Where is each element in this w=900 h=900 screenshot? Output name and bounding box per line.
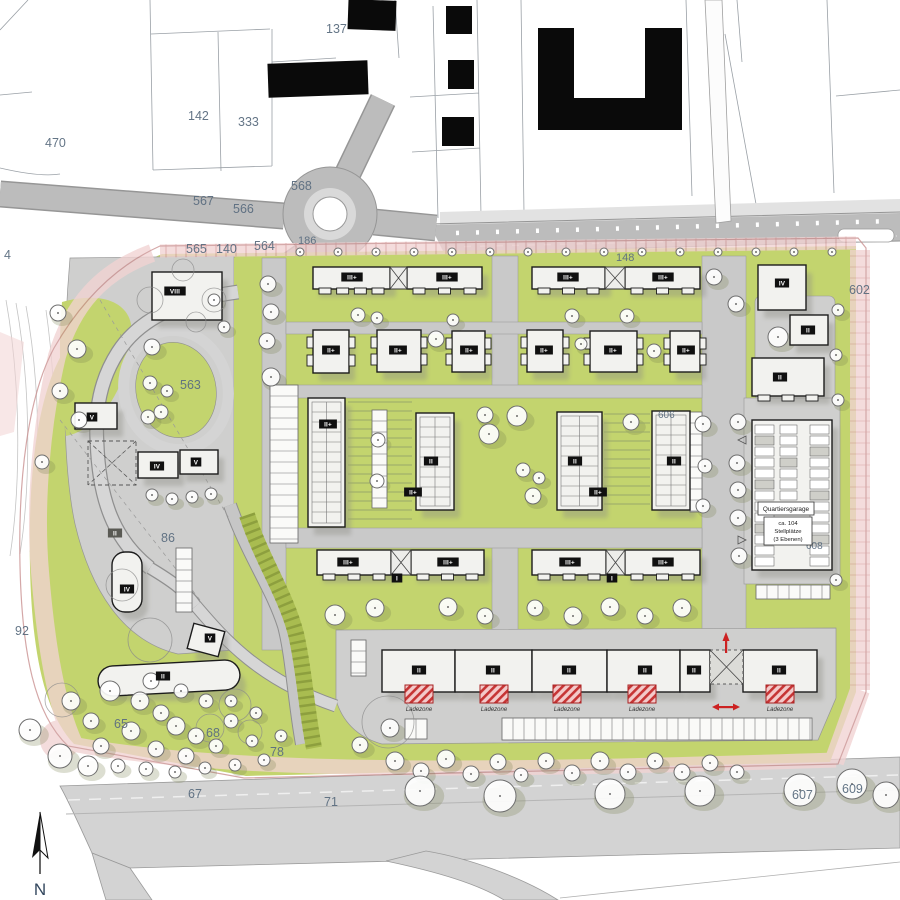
tree [93, 738, 109, 754]
svg-text:II: II [692, 667, 696, 674]
tree [591, 752, 609, 770]
parcel-number: 186 [298, 235, 316, 247]
parcel-number: 602 [849, 283, 870, 297]
story-badge: II+ [589, 488, 607, 497]
story-badge: II [424, 457, 438, 466]
tree [410, 248, 418, 256]
story-badge: II [667, 457, 681, 466]
tree [405, 776, 435, 806]
tree [52, 383, 68, 399]
tree [258, 754, 270, 766]
tree [698, 459, 712, 473]
parcel-number: 142 [188, 109, 209, 123]
tree [371, 312, 383, 324]
svg-text:II: II [491, 667, 495, 674]
tree [205, 488, 217, 500]
tree [366, 599, 384, 617]
tree [199, 694, 213, 708]
svg-text:V: V [194, 459, 199, 466]
ladezone-label: Ladezone [629, 707, 656, 713]
svg-text:II: II [643, 667, 647, 674]
parcel-number: 566 [233, 202, 254, 216]
parcel-number: 606 [658, 410, 675, 421]
ladezone-label: Ladezone [406, 707, 433, 713]
parking-stall-row [176, 548, 192, 612]
tree [428, 331, 444, 347]
parcel-number: 68 [206, 726, 220, 740]
tree [111, 759, 125, 773]
tree [832, 394, 844, 406]
story-badge: II [486, 666, 500, 675]
tree [477, 608, 493, 624]
parcel-number: 4 [4, 248, 11, 262]
svg-text:II+: II+ [327, 347, 335, 354]
story-badge: IV [775, 279, 789, 288]
tree [477, 407, 493, 423]
ladezone-label: Ladezone [481, 707, 508, 713]
ladezone: Ladezone [480, 685, 508, 713]
svg-text:II+: II+ [465, 347, 473, 354]
tree [479, 424, 499, 444]
story-badge: II [773, 373, 787, 382]
tree [828, 248, 836, 256]
story-badge: II [108, 529, 122, 538]
tree [146, 489, 158, 501]
story-badge: II+ [535, 346, 553, 355]
story-badge: II [772, 666, 786, 675]
tree [246, 735, 258, 747]
ladezone-label: Ladezone [554, 707, 581, 713]
tree [186, 491, 198, 503]
parking-stall-row [502, 718, 812, 740]
story-badge: II [568, 457, 582, 466]
parcel-number: 607 [792, 788, 813, 802]
parcel-number: 65 [114, 717, 128, 731]
tree [167, 717, 185, 735]
tree [263, 304, 279, 320]
tree [296, 248, 304, 256]
parcel-number: 71 [324, 795, 338, 809]
parcel-number: 333 [238, 115, 259, 129]
tree [600, 248, 608, 256]
tree [71, 412, 87, 428]
story-badge: I [607, 574, 618, 583]
parcel-number: 137 [326, 22, 347, 36]
svg-text:II+: II+ [682, 347, 690, 354]
building [308, 398, 345, 527]
parcel-number: 92 [15, 624, 29, 638]
garage-note: Quartiersgarage ca. 104 Stellplätze (3 E… [758, 502, 814, 545]
parcel-number: 470 [45, 136, 66, 150]
svg-text:II: II [806, 327, 810, 334]
tree [161, 385, 173, 397]
story-badge: III+ [652, 558, 673, 567]
parcel-number: 78 [270, 745, 284, 759]
tree [325, 605, 345, 625]
tree [706, 269, 722, 285]
svg-text:IV: IV [154, 463, 161, 470]
svg-text:III+: III+ [565, 559, 575, 566]
tree [674, 764, 690, 780]
tree [381, 719, 399, 737]
svg-text:III+: III+ [658, 559, 668, 566]
svg-text:II+: II+ [324, 421, 332, 428]
parcel-number: 568 [291, 179, 312, 193]
tree [62, 692, 80, 710]
tree [448, 248, 456, 256]
svg-text:II: II [161, 673, 165, 680]
tree [768, 327, 788, 347]
story-badge: II [687, 666, 701, 675]
story-badge: III+ [652, 273, 673, 282]
svg-text:III+: III+ [343, 559, 353, 566]
parking-stall-row [270, 385, 298, 543]
tree [275, 730, 287, 742]
story-badge: II [801, 326, 815, 335]
tree [575, 338, 587, 350]
parcel-number: 140 [216, 242, 237, 256]
tree [199, 762, 211, 774]
tree [370, 474, 384, 488]
story-badge: IV [120, 585, 134, 594]
tree [447, 314, 459, 326]
svg-text:II: II [777, 667, 781, 674]
story-badge: IV [150, 462, 164, 471]
ladezone: Ladezone [628, 685, 656, 713]
building [391, 550, 411, 575]
tree [538, 753, 554, 769]
svg-text:II: II [573, 458, 577, 465]
tree [178, 748, 194, 764]
tree [35, 455, 49, 469]
tree [564, 765, 580, 781]
svg-text:I: I [396, 575, 398, 582]
story-badge: II+ [604, 346, 622, 355]
tree [484, 780, 516, 812]
story-badge: III+ [341, 273, 362, 282]
story-badge: V [205, 634, 216, 643]
story-badge: III+ [437, 558, 458, 567]
tree [695, 416, 711, 432]
tree [208, 294, 220, 306]
story-badge: III+ [559, 558, 580, 567]
parcel-number: 567 [193, 194, 214, 208]
tree [830, 574, 842, 586]
tree [259, 333, 275, 349]
tree [490, 754, 506, 770]
tree [437, 750, 455, 768]
tree [154, 405, 168, 419]
tree [139, 762, 153, 776]
tree [386, 752, 404, 770]
tree [143, 376, 157, 390]
svg-text:III+: III+ [443, 559, 453, 566]
tree [623, 414, 639, 430]
tree [141, 410, 155, 424]
svg-text:V: V [90, 414, 95, 421]
tree [702, 755, 718, 771]
north-label: N [34, 880, 46, 899]
tree [601, 598, 619, 616]
svg-text:II: II [567, 667, 571, 674]
tree [174, 684, 188, 698]
svg-text:II+: II+ [394, 347, 402, 354]
tree [224, 714, 238, 728]
tree [439, 598, 457, 616]
svg-text:III+: III+ [442, 274, 452, 281]
tree [524, 248, 532, 256]
svg-text:VIII: VIII [170, 288, 180, 295]
tree [564, 607, 582, 625]
tree [676, 248, 684, 256]
story-badge: V [87, 413, 98, 422]
parcel-number: 565 [186, 242, 207, 256]
story-badge: II [638, 666, 652, 675]
tree [730, 482, 746, 498]
svg-text:IV: IV [124, 586, 131, 593]
tree [730, 510, 746, 526]
tree [685, 776, 715, 806]
tree [527, 600, 543, 616]
story-badge: V [191, 458, 202, 467]
ladezone: Ladezone [766, 685, 794, 713]
tree [131, 692, 149, 710]
story-badge: II+ [319, 420, 337, 429]
tree [525, 488, 541, 504]
tree [68, 340, 86, 358]
tree [673, 599, 691, 617]
garage-unit: Stellplätze [774, 529, 802, 535]
svg-text:II: II [429, 458, 433, 465]
parcel-number: 609 [842, 782, 863, 796]
tree [148, 741, 164, 757]
tree [371, 433, 385, 447]
tree [830, 349, 842, 361]
tree [48, 744, 72, 768]
parking-stall-row [756, 585, 830, 599]
svg-text:II: II [778, 374, 782, 381]
svg-text:V: V [208, 635, 213, 642]
building [605, 267, 625, 289]
garage-capacity: ca. 104 [778, 521, 798, 527]
tree [166, 493, 178, 505]
svg-text:II+: II+ [409, 489, 417, 496]
tree [463, 766, 479, 782]
tree [620, 309, 634, 323]
tree [728, 296, 744, 312]
tree [790, 248, 798, 256]
tree [832, 304, 844, 316]
svg-text:II+: II+ [594, 489, 602, 496]
story-badge: II [412, 666, 426, 675]
tree [595, 779, 625, 809]
tree [752, 248, 760, 256]
story-badge: III+ [436, 273, 457, 282]
svg-text:II: II [417, 667, 421, 674]
tree [565, 309, 579, 323]
svg-text:III+: III+ [658, 274, 668, 281]
parcel-number: 148 [616, 252, 634, 264]
tree [562, 248, 570, 256]
svg-text:IV: IV [779, 280, 786, 287]
parcel-number: 67 [188, 787, 202, 801]
tree [169, 766, 181, 778]
ladezone: Ladezone [553, 685, 581, 713]
svg-text:III+: III+ [347, 274, 357, 281]
site-plan-canvas: LadezoneLadezoneLadezoneLadezoneLadezone… [0, 0, 900, 900]
tree [731, 548, 747, 564]
story-badge: II+ [389, 346, 407, 355]
svg-text:III+: III+ [563, 274, 573, 281]
tree [334, 248, 342, 256]
tree [229, 759, 241, 771]
tree [153, 705, 169, 721]
tree [873, 782, 899, 808]
story-badge: III+ [337, 558, 358, 567]
tree [516, 463, 530, 477]
tree [144, 339, 160, 355]
tree [209, 739, 223, 753]
tree [730, 414, 746, 430]
tree [19, 719, 41, 741]
tree [696, 499, 710, 513]
parking-stall-row [405, 719, 427, 739]
tree [225, 695, 237, 707]
building [752, 358, 824, 401]
tree [647, 753, 663, 769]
story-badge: II+ [460, 346, 478, 355]
tree [100, 681, 120, 701]
tree [514, 768, 528, 782]
tree [729, 455, 745, 471]
story-badge: II+ [404, 488, 422, 497]
parcel-number: 563 [180, 378, 201, 392]
tree [372, 248, 380, 256]
parcel-number: 564 [254, 239, 275, 253]
site-plan-page: LadezoneLadezoneLadezoneLadezoneLadezone… [0, 0, 900, 900]
ladezone-label: Ladezone [767, 707, 794, 713]
story-badge: II [156, 672, 170, 681]
tree [260, 276, 276, 292]
garage-title: Quartiersgarage [763, 506, 810, 513]
tree [250, 707, 262, 719]
tree [218, 321, 230, 333]
story-badge: I [392, 574, 403, 583]
tree [352, 737, 368, 753]
svg-text:II+: II+ [540, 347, 548, 354]
tree [50, 305, 66, 321]
parking-stall-row [351, 640, 366, 676]
building [390, 267, 407, 289]
story-badge: II+ [677, 346, 695, 355]
tree [637, 608, 653, 624]
tree [78, 756, 98, 776]
tree [188, 728, 204, 744]
tree [83, 713, 99, 729]
building [606, 550, 625, 575]
tree [638, 248, 646, 256]
svg-text:II+: II+ [609, 347, 617, 354]
tree [533, 472, 545, 484]
story-badge: VIII [164, 287, 185, 296]
story-badge: II [562, 666, 576, 675]
svg-text:II: II [113, 530, 117, 537]
story-badge: II+ [322, 346, 340, 355]
story-badge: III+ [557, 273, 578, 282]
tree [351, 308, 365, 322]
tree [262, 368, 280, 386]
tree [620, 764, 636, 780]
garage-levels: (3 Ebenen) [773, 537, 802, 543]
parcel-number: 86 [161, 531, 175, 545]
building [710, 650, 743, 684]
ladezone: Ladezone [405, 685, 433, 713]
tree [647, 344, 661, 358]
tree [486, 248, 494, 256]
svg-text:I: I [611, 575, 613, 582]
parking-stall-row [372, 410, 387, 508]
tree [507, 406, 527, 426]
svg-text:II: II [672, 458, 676, 465]
tree [730, 765, 744, 779]
tree [714, 248, 722, 256]
